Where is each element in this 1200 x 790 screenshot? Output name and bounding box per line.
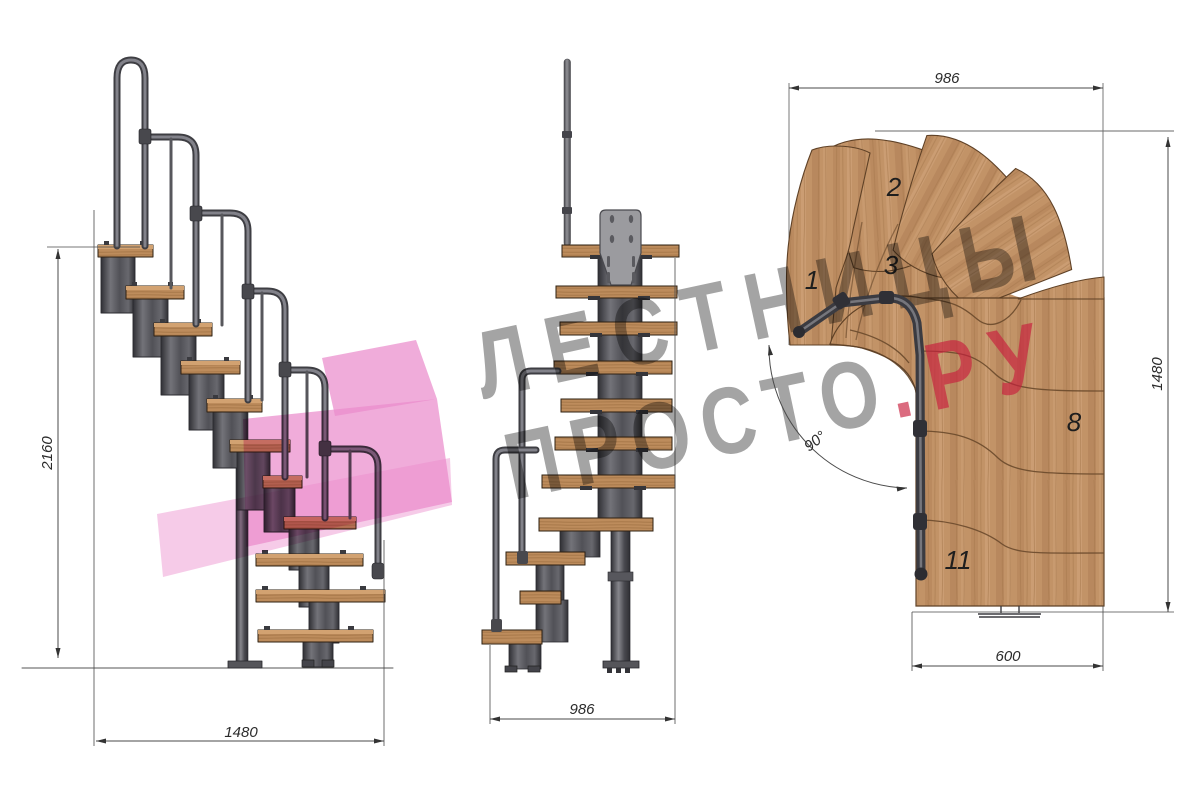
svg-text:2160: 2160 [39, 436, 56, 471]
svg-text:11: 11 [945, 545, 972, 575]
svg-text:1480: 1480 [1149, 357, 1166, 391]
svg-text:986: 986 [569, 701, 595, 718]
svg-text:2: 2 [886, 172, 902, 202]
svg-text:1480: 1480 [224, 724, 258, 741]
svg-text:986: 986 [934, 70, 960, 87]
svg-text:600: 600 [995, 648, 1021, 665]
svg-text:8: 8 [1067, 407, 1082, 437]
